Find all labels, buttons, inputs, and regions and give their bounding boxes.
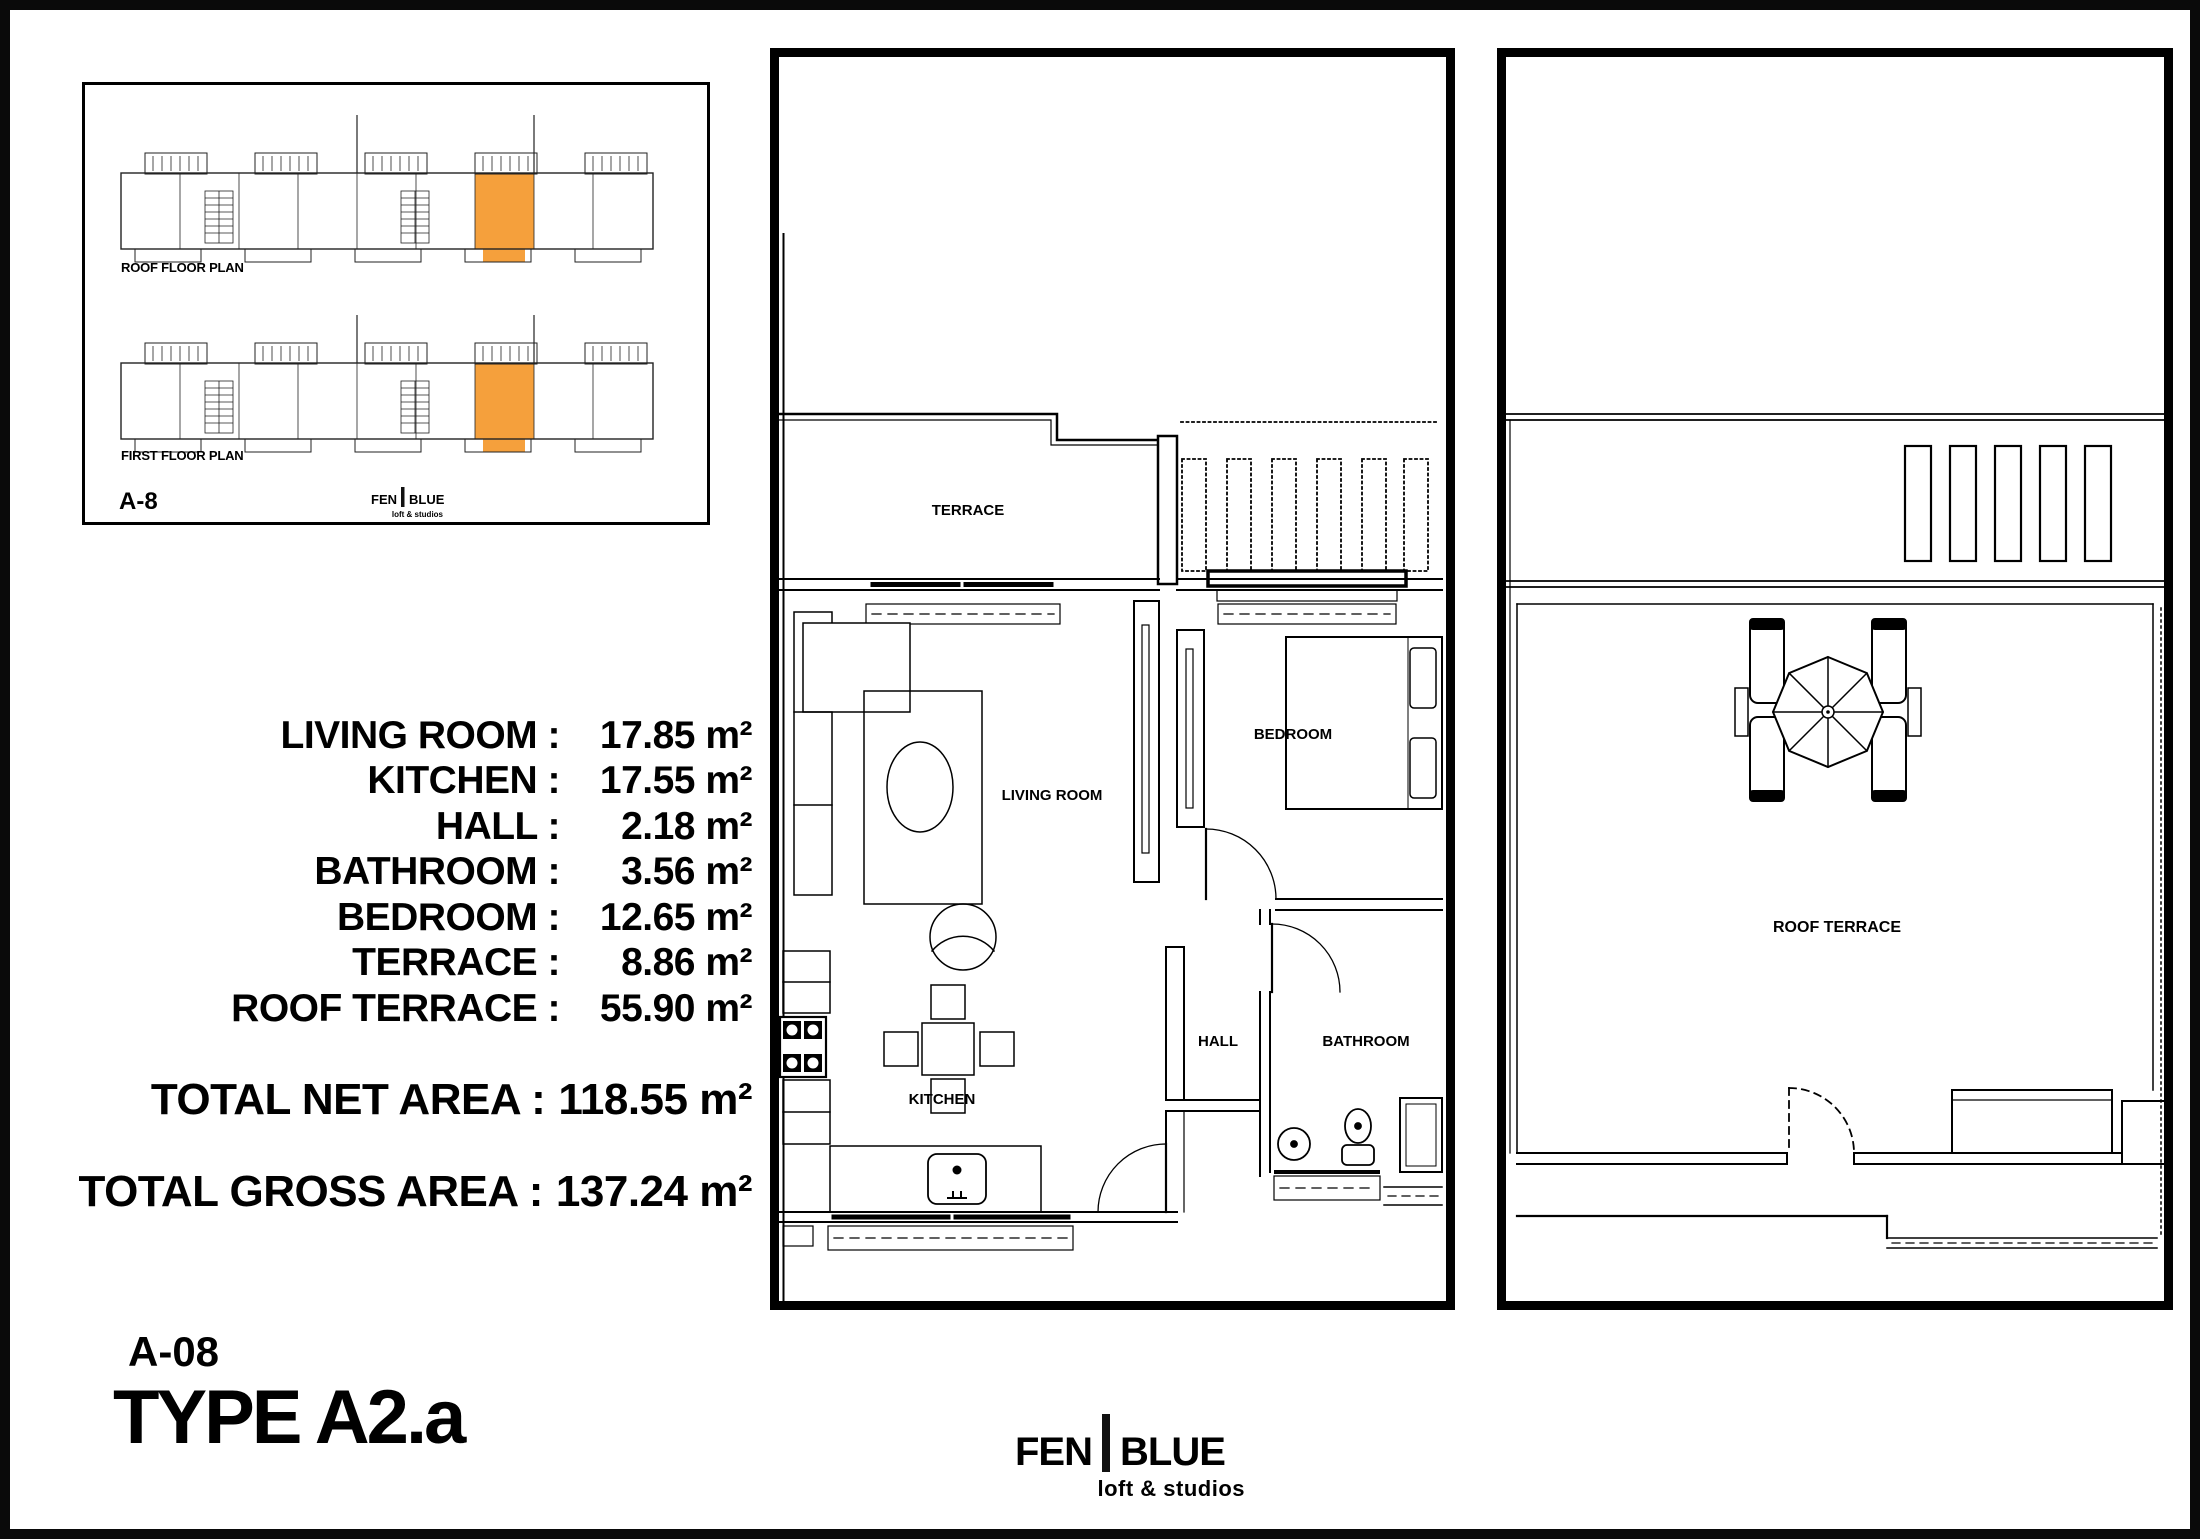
area-row: BEDROOM :12.65 m²	[110, 895, 752, 941]
highlighted-unit-roof	[475, 173, 534, 249]
terrace-label: TERRACE	[932, 502, 1005, 519]
brand-logo: FEN BLUE loft & studios	[1015, 1414, 1245, 1502]
roof-floor-plan-drawing: ROOF TERRACE	[1497, 48, 2173, 1310]
area-row: LIVING ROOM :17.85 m²	[110, 713, 752, 759]
roof-bench	[1952, 1090, 2165, 1164]
area-row: KITCHEN :17.55 m²	[110, 759, 752, 805]
inset-brand-bar	[401, 487, 405, 507]
brand-bar	[1102, 1414, 1110, 1472]
sheet-ref-label: A-8	[119, 488, 158, 515]
key-roof-strip	[121, 115, 653, 262]
highlighted-unit-first	[475, 363, 534, 439]
bed	[1286, 637, 1442, 809]
area-row: ROOF TERRACE :55.90 m²	[110, 986, 752, 1032]
location-key-drawing: ROOF FLOOR PLAN FIRST FLOOR PLAN A-8 FEN…	[85, 85, 707, 522]
key-first-strip	[121, 315, 653, 452]
roof-terrace-label: ROOF TERRACE	[1773, 919, 1901, 936]
brand-name-right: BLUE	[1120, 1432, 1225, 1472]
patio-table-umbrella	[1773, 657, 1883, 767]
bedroom-label: BEDROOM	[1254, 726, 1332, 743]
bathroom-label: BATHROOM	[1322, 1033, 1409, 1050]
roof-floor-plan-panel: ROOF TERRACE	[1497, 48, 2173, 1310]
location-key-inset: ROOF FLOOR PLAN FIRST FLOOR PLAN A-8 FEN…	[82, 82, 710, 525]
kitchen-label: KITCHEN	[909, 1091, 976, 1108]
roof-floor-plan-label: ROOF FLOOR PLAN	[121, 260, 244, 275]
total-gross-area: TOTAL GROSS AREA :137.24 m²	[40, 1167, 752, 1217]
inset-brand-logo: FEN BLUE loft & studios	[371, 487, 445, 519]
first-floor-plan-drawing: TERRACE LIVING ROOM BEDROOM HALL BATHROO…	[770, 48, 1455, 1310]
unit-type-title: TYPE A2.a	[113, 1374, 463, 1461]
total-net-area: TOTAL NET AREA :118.55 m²	[40, 1075, 752, 1125]
stove	[780, 1017, 826, 1077]
living-room-label: LIVING ROOM	[1002, 787, 1103, 804]
inset-brand-tagline: loft & studios	[392, 510, 444, 519]
brand-name-left: FEN	[1015, 1432, 1092, 1472]
brand-row: FEN BLUE	[1015, 1414, 1245, 1472]
first-floor-plan-panel: TERRACE LIVING ROOM BEDROOM HALL BATHROO…	[770, 48, 1455, 1310]
brand-tagline: loft & studios	[1015, 1476, 1245, 1502]
area-row: HALL :2.18 m²	[110, 804, 752, 850]
plan-sheet: ROOF FLOOR PLAN FIRST FLOOR PLAN A-8 FEN…	[0, 0, 2200, 1539]
area-row: TERRACE :8.86 m²	[110, 941, 752, 987]
unit-code: A-08	[128, 1328, 219, 1376]
hall-label: HALL	[1198, 1033, 1238, 1050]
inset-brand-right: BLUE	[409, 492, 445, 507]
area-row: BATHROOM :3.56 m²	[110, 850, 752, 896]
window-ticks	[153, 156, 638, 171]
first-floor-plan-label: FIRST FLOOR PLAN	[121, 448, 243, 463]
inset-brand-left: FEN	[371, 492, 397, 507]
area-schedule: LIVING ROOM :17.85 m² KITCHEN :17.55 m² …	[110, 713, 752, 1032]
